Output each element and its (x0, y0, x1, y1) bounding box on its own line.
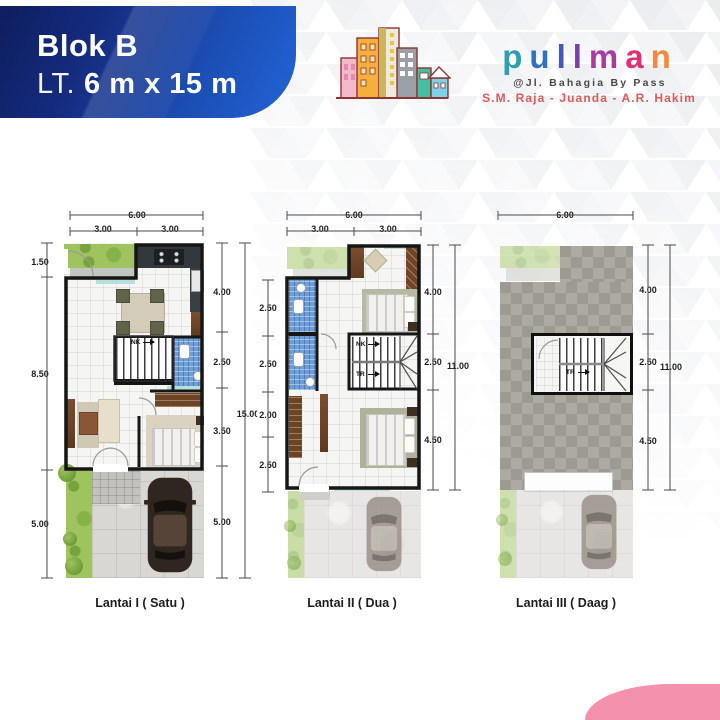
dim-right: 4.00 (637, 285, 659, 295)
wardrobe (350, 247, 364, 278)
car-top-view-ghost (362, 494, 406, 574)
floor-label: Lantai III ( Daag ) (516, 596, 616, 610)
nightstand (407, 407, 418, 416)
dim-width-left: 3.00 (92, 224, 114, 234)
closet (406, 247, 420, 293)
stair-direction-up: NK (131, 339, 154, 346)
dining-chair (116, 289, 130, 303)
rooftop-deck (560, 246, 633, 282)
toilet (293, 299, 304, 314)
window-sill (155, 467, 195, 471)
pillow (404, 418, 415, 435)
lot-size-line: LT.6 m x 15 m (37, 68, 237, 101)
dim-left: 2.50 (257, 460, 279, 470)
car-top-view (142, 474, 198, 576)
dim-right: 4.50 (422, 435, 444, 445)
dim-left: 2.50 (257, 359, 279, 369)
shrub (287, 556, 301, 570)
planter-ledge-ghost (293, 269, 349, 279)
dim-height-total: 11.00 (658, 362, 684, 372)
nightstand (196, 416, 204, 425)
stair-landing (536, 338, 559, 391)
stair-direction-up: NK (356, 341, 379, 348)
dim-right: 2.50 (211, 357, 233, 367)
arrow-right-icon (143, 342, 154, 343)
bed (366, 294, 408, 332)
sink (193, 371, 203, 381)
shrub (284, 520, 296, 532)
lot-size: 6 m x 15 m (84, 68, 237, 100)
dim-left: 8.50 (29, 369, 51, 379)
stair-wall (114, 379, 180, 385)
tv-console (67, 399, 75, 448)
dim-left: 2.00 (257, 410, 279, 420)
pillow (194, 431, 204, 447)
planter-ledge-ghost (506, 268, 560, 281)
cabinet (191, 312, 203, 336)
dim-right: 3.50 (211, 426, 233, 436)
planter-ledge (70, 268, 135, 280)
shrub (498, 552, 512, 566)
stair-direction-down: TR (566, 369, 589, 376)
nightstand (408, 322, 418, 331)
logo-letter: p (502, 38, 529, 75)
window-sill (96, 280, 135, 284)
stove (154, 249, 184, 265)
logo-letter: n (651, 38, 678, 75)
shrub (65, 557, 83, 575)
logo-letter: u (529, 38, 556, 75)
toilet (179, 344, 190, 359)
wardrobe (155, 393, 203, 407)
planter-box-ghost (287, 247, 349, 269)
floor-label: Lantai II ( Dua ) (307, 596, 397, 610)
entry-step (300, 491, 330, 500)
logo-letter: a (625, 38, 650, 75)
dim-right: 2.50 (637, 357, 659, 367)
sink (305, 377, 315, 387)
canopy-edge (524, 472, 613, 492)
planter-box (64, 244, 135, 268)
nightstand (407, 458, 418, 467)
pink-corner-accent (585, 684, 720, 720)
dining-chair (116, 321, 130, 335)
dining-chair (150, 321, 164, 335)
logo-letter: m (589, 38, 625, 75)
dim-left: 1.50 (29, 257, 51, 267)
buildings (336, 28, 450, 98)
dim-width-total: 6.00 (126, 210, 148, 220)
dim-width-total: 6.00 (343, 210, 365, 220)
dim-left: 2.50 (257, 303, 279, 313)
floor-label: Lantai I ( Satu ) (95, 596, 185, 610)
planter-box-ghost (500, 246, 560, 268)
staircase (559, 338, 604, 391)
window-sill (167, 386, 200, 390)
block-banner: Blok B LT.6 m x 15 m (0, 6, 296, 118)
brand-roads: S.M. Raja - Juanda - A.R. Hakim (458, 91, 720, 105)
sofa (98, 399, 120, 443)
lot-prefix: LT. (37, 68, 75, 100)
brand-logo-pullman: pullman (468, 38, 712, 76)
shrub (63, 532, 77, 546)
bed (152, 428, 196, 466)
bed (366, 414, 406, 466)
pillow (404, 436, 415, 453)
wardrobe (289, 396, 302, 458)
dim-right: 4.50 (637, 436, 659, 446)
arrow-right-icon (368, 374, 379, 375)
porch-tiles (92, 470, 140, 504)
flyer-canvas: Blok B LT.6 m x 15 m (0, 0, 720, 720)
dim-width-right: 3.00 (377, 224, 399, 234)
shrub (496, 514, 508, 526)
dining-chair (150, 289, 164, 303)
logo-letter: l (573, 38, 589, 75)
wardrobe-wall (320, 394, 328, 452)
pillow (194, 447, 204, 463)
dim-width-left: 3.00 (309, 224, 331, 234)
bathroom-divider-wall (289, 332, 317, 336)
armchair (79, 412, 98, 435)
dim-right: 5.00 (211, 517, 233, 527)
sink (296, 283, 306, 293)
dim-right: 4.00 (211, 287, 233, 297)
dim-width-total: 6.00 (554, 210, 576, 220)
car-top-view-ghost (577, 492, 621, 572)
arrow-right-icon (368, 344, 379, 345)
toilet (293, 352, 304, 367)
logo-letter: l (557, 38, 573, 75)
dim-right: 2.50 (422, 357, 444, 367)
block-title: Blok B (37, 28, 138, 64)
city-skyline-illustration (333, 20, 451, 108)
shrub (58, 464, 76, 482)
arrow-right-icon (578, 372, 589, 373)
dim-left: 5.00 (29, 519, 51, 529)
fridge (191, 270, 204, 292)
dim-right: 4.00 (422, 287, 444, 297)
pillow (404, 296, 415, 312)
dim-width-right: 3.00 (159, 224, 181, 234)
brand-address: @Jl. Bahagia By Pass (468, 77, 712, 89)
stair-direction-down: TR (356, 371, 379, 378)
dim-height-total: 11.00 (445, 361, 471, 371)
